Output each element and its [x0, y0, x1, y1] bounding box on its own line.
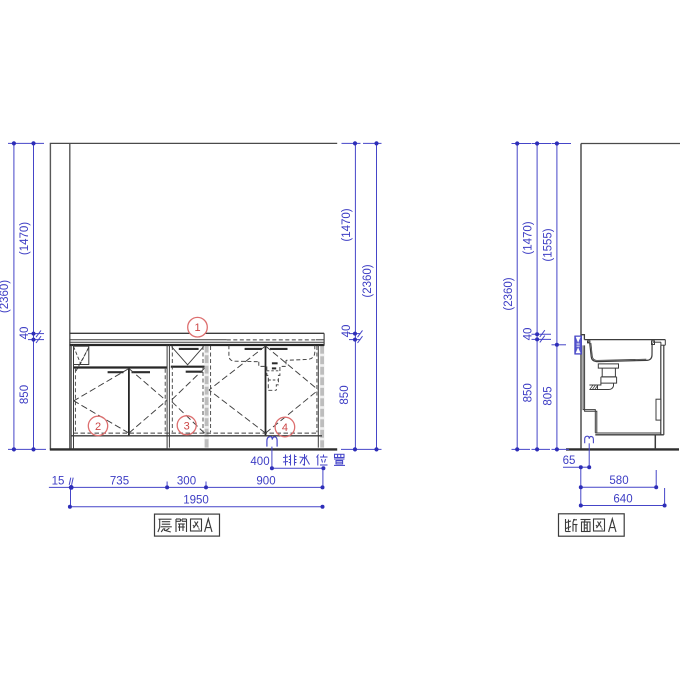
svg-text:(2360): (2360): [362, 264, 374, 297]
svg-text:(1470): (1470): [19, 222, 31, 255]
svg-text:40: 40: [523, 328, 535, 341]
svg-text:15: 15: [52, 475, 65, 487]
svg-text:(1555): (1555): [542, 228, 554, 261]
svg-text:65: 65: [563, 455, 576, 467]
svg-text:640: 640: [613, 494, 632, 506]
svg-text:(1470): (1470): [341, 208, 353, 241]
svg-text:(1470): (1470): [523, 221, 535, 254]
svg-text:4: 4: [282, 422, 288, 434]
svg-text:1950: 1950: [183, 495, 209, 507]
svg-text:(2360): (2360): [0, 280, 11, 313]
svg-text:735: 735: [110, 475, 129, 487]
svg-text:(2360): (2360): [503, 277, 515, 310]
svg-text:805: 805: [542, 386, 554, 405]
svg-text:2: 2: [95, 421, 101, 433]
svg-text:400: 400: [250, 456, 269, 468]
svg-text:850: 850: [19, 385, 31, 404]
svg-text:40: 40: [19, 327, 31, 340]
svg-text:850: 850: [523, 383, 535, 402]
svg-text:580: 580: [609, 475, 628, 487]
svg-text:300: 300: [177, 475, 196, 487]
svg-text:40: 40: [341, 325, 353, 338]
svg-text:900: 900: [256, 475, 275, 487]
svg-text:850: 850: [339, 385, 351, 404]
svg-text:3: 3: [184, 420, 190, 432]
svg-text:1: 1: [194, 322, 200, 334]
